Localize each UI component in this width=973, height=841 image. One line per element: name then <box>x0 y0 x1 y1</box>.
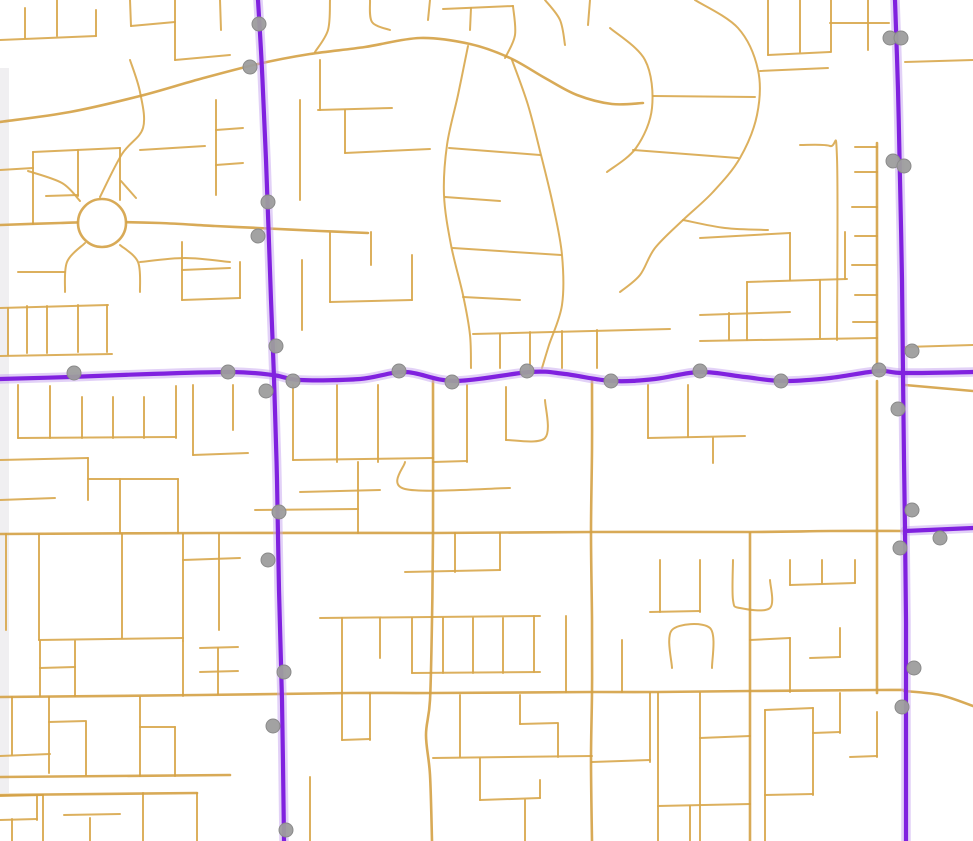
street-road <box>342 739 370 740</box>
street-road <box>175 55 230 60</box>
street-road <box>120 245 140 292</box>
node-marker[interactable] <box>259 384 273 398</box>
map-tile-edge <box>0 68 9 793</box>
street-road <box>428 0 430 20</box>
node-marker[interactable] <box>392 364 406 378</box>
street-road <box>320 616 540 618</box>
street-road <box>33 148 120 152</box>
map-canvas[interactable] <box>0 0 973 841</box>
street-road <box>444 46 471 368</box>
node-marker[interactable] <box>905 344 919 358</box>
node-marker[interactable] <box>221 365 235 379</box>
node-marker[interactable] <box>251 229 265 243</box>
node-marker[interactable] <box>269 339 283 353</box>
node-marker[interactable] <box>261 195 275 209</box>
roundabout <box>78 199 126 247</box>
collector-road <box>0 775 230 777</box>
node-marker[interactable] <box>252 17 266 31</box>
street-road <box>480 798 540 800</box>
street-road <box>140 146 205 150</box>
street-road <box>193 453 248 455</box>
collector-road <box>905 385 973 391</box>
street-road <box>182 298 240 300</box>
street-road <box>653 96 755 97</box>
map-viewport[interactable] <box>0 0 973 841</box>
node-marker[interactable] <box>445 375 459 389</box>
street-road <box>443 6 513 9</box>
street-road <box>18 437 176 438</box>
street-road <box>39 638 183 640</box>
street-road <box>130 0 131 26</box>
collector-road <box>0 793 197 795</box>
street-road <box>505 6 515 58</box>
street-road <box>588 0 590 25</box>
collector-road <box>0 222 368 233</box>
street-road <box>121 181 136 198</box>
node-marker[interactable] <box>604 374 618 388</box>
street-road <box>700 312 790 315</box>
street-road <box>0 354 112 356</box>
street-road <box>463 297 520 300</box>
street-road <box>453 248 561 255</box>
node-marker[interactable] <box>266 719 280 733</box>
street-road <box>732 560 772 610</box>
street-road <box>255 509 358 510</box>
street-road <box>813 732 840 733</box>
street-road <box>810 657 840 658</box>
collector-road <box>0 531 904 534</box>
node-marker[interactable] <box>897 159 911 173</box>
node-marker[interactable] <box>905 503 919 517</box>
primary-road-halo <box>0 0 973 841</box>
street-road <box>433 461 467 462</box>
street-road <box>318 108 392 110</box>
street-road <box>370 0 390 30</box>
node-marker[interactable] <box>693 364 707 378</box>
node-marker[interactable] <box>907 661 921 675</box>
street-road <box>747 279 847 282</box>
street-road <box>65 243 85 292</box>
street-road <box>40 667 75 668</box>
street-road <box>512 60 563 368</box>
node-marker[interactable] <box>243 60 257 74</box>
street-road <box>49 721 86 722</box>
node-marker[interactable] <box>894 31 908 45</box>
street-road <box>633 150 738 158</box>
node-marker[interactable] <box>277 665 291 679</box>
primary-road <box>905 528 973 531</box>
street-road <box>905 60 973 62</box>
street-road <box>850 756 877 757</box>
street-road <box>700 233 790 238</box>
street-road <box>0 36 96 40</box>
node-marker[interactable] <box>893 541 907 555</box>
street-road <box>620 0 760 292</box>
street-road <box>397 462 510 491</box>
street-road <box>545 0 565 45</box>
street-road <box>46 195 78 196</box>
node-marker[interactable] <box>933 531 947 545</box>
street-road <box>182 268 230 270</box>
node-marker[interactable] <box>895 700 909 714</box>
street-road <box>669 624 713 668</box>
street-road <box>216 163 243 165</box>
street-road <box>140 258 230 262</box>
collector-road <box>591 381 592 841</box>
street-road <box>768 52 830 55</box>
street-road <box>0 305 108 308</box>
street-road <box>300 490 380 492</box>
street-road <box>760 68 828 71</box>
node-marker[interactable] <box>520 364 534 378</box>
node-marker[interactable] <box>272 505 286 519</box>
street-road <box>470 8 471 30</box>
street-road <box>592 760 650 762</box>
node-marker[interactable] <box>891 402 905 416</box>
street-road <box>520 723 558 724</box>
node-marker[interactable] <box>279 823 293 837</box>
street-road <box>449 148 540 155</box>
collector-streets <box>0 38 973 841</box>
street-road <box>293 458 433 460</box>
street-network <box>0 0 973 841</box>
street-road <box>700 338 877 341</box>
node-marker[interactable] <box>67 366 81 380</box>
node-marker[interactable] <box>261 553 275 567</box>
street-road <box>64 814 120 815</box>
node-marker[interactable] <box>872 363 886 377</box>
collector-road <box>0 690 904 697</box>
collector-road <box>426 381 433 841</box>
street-road <box>0 458 88 460</box>
street-road <box>506 400 548 442</box>
street-road <box>658 804 750 806</box>
roundabout-circle <box>78 199 126 247</box>
street-road <box>648 436 745 438</box>
street-road <box>683 220 768 230</box>
street-road <box>100 60 144 197</box>
street-road <box>750 638 790 640</box>
collector-road <box>904 691 973 706</box>
street-road <box>330 300 412 302</box>
street-road <box>765 708 813 710</box>
street-road <box>345 149 430 153</box>
street-road <box>200 647 238 648</box>
street-road <box>315 0 330 52</box>
street-road <box>0 819 37 820</box>
street-road <box>216 128 243 130</box>
street-road <box>473 329 670 334</box>
node-marker[interactable] <box>774 374 788 388</box>
street-road <box>700 736 750 738</box>
street-road <box>183 558 240 560</box>
street-road <box>433 756 592 758</box>
street-road <box>445 197 500 201</box>
street-road <box>800 140 838 340</box>
street-road <box>131 22 175 26</box>
street-road <box>765 794 813 795</box>
map-tile-edge-strip <box>0 68 9 793</box>
street-road <box>220 0 221 30</box>
street-road <box>405 570 500 572</box>
primary-road-halo <box>258 0 284 841</box>
primary-roads <box>0 0 973 841</box>
node-marker[interactable] <box>286 374 300 388</box>
street-road <box>650 611 700 612</box>
